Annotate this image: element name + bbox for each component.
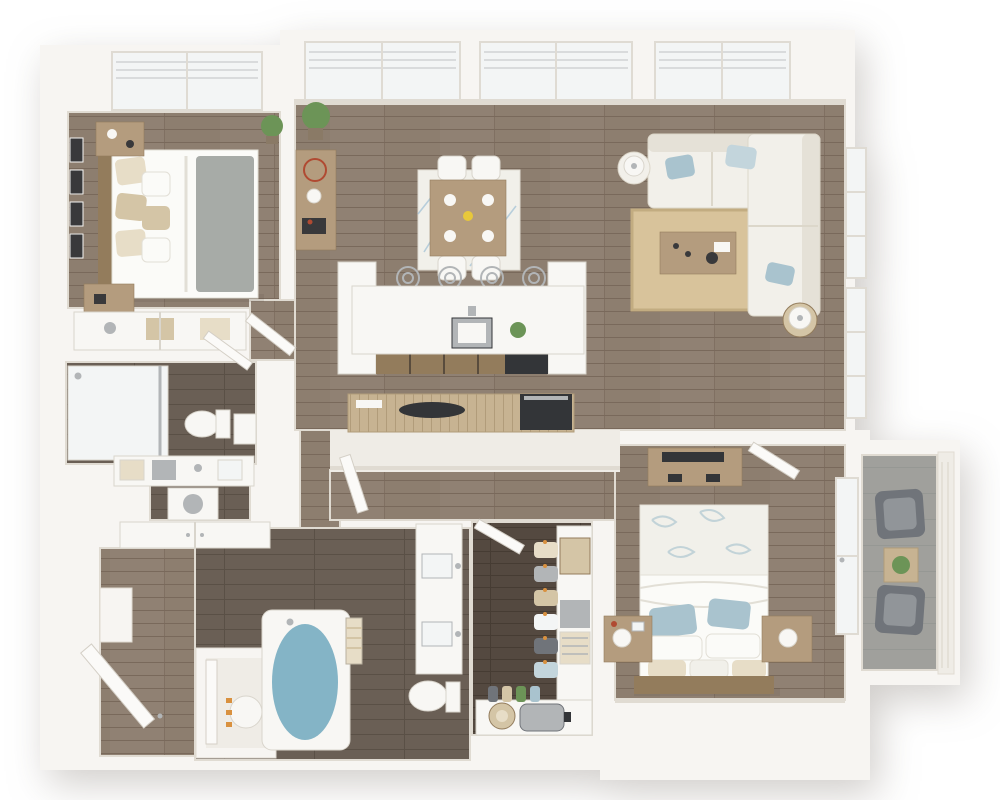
kitchen-hall-wall-edge <box>330 466 620 470</box>
shoes <box>530 686 540 702</box>
place-setting <box>482 194 494 206</box>
bed-1-pillow <box>142 238 170 262</box>
dining-window <box>305 42 460 100</box>
wall-art-frame <box>70 170 83 194</box>
water-heater-valve <box>226 698 232 703</box>
closet-basket <box>104 322 116 334</box>
place-setting <box>482 230 494 242</box>
tv <box>662 452 724 462</box>
shoes <box>488 686 498 702</box>
nightstand-decor <box>107 129 117 139</box>
sun-hat-crown <box>496 710 508 722</box>
laundry-sink-faucet <box>194 464 202 472</box>
nightstand-flowers <box>611 621 617 627</box>
centerpiece-flowers <box>463 211 473 221</box>
coffee-table-vase <box>706 252 718 264</box>
cooktop <box>399 402 465 418</box>
nightstand-lamp <box>613 629 631 647</box>
laundry-basket <box>120 460 144 480</box>
hanger <box>543 612 547 616</box>
shower <box>68 366 168 460</box>
laundry-basket <box>152 460 176 480</box>
balcony-chair-cushion <box>883 497 917 531</box>
coffee-table-decor <box>685 251 691 257</box>
balcony-railing <box>938 452 954 674</box>
plant <box>261 115 283 137</box>
coffee-table-decor <box>673 243 679 249</box>
bed-1-pillow <box>142 206 170 230</box>
bed-1-pillow <box>142 172 170 196</box>
water-heater <box>230 696 262 728</box>
vanity-sink <box>422 554 452 578</box>
storage-box <box>560 632 590 664</box>
tub-faucet <box>287 619 294 626</box>
bed-2-leaf-blanket <box>640 505 768 575</box>
floor-plan-render <box>0 0 1000 800</box>
wall-art-frame <box>70 202 83 226</box>
place-setting <box>444 230 456 242</box>
accent-pillow <box>725 144 758 170</box>
bed-2-pillow-blue <box>707 598 752 630</box>
storage-box <box>560 600 590 628</box>
hanging-shirt <box>534 542 558 558</box>
console-decor-bowl <box>307 189 321 203</box>
hanging-shirt <box>534 638 558 654</box>
hanger <box>543 564 547 568</box>
double-vanity <box>416 524 462 674</box>
nightstand-lamp <box>779 629 797 647</box>
hanging-shirt <box>534 590 558 606</box>
dining-chair <box>472 156 500 180</box>
shoes <box>502 686 512 702</box>
hanging-shirt <box>534 662 558 678</box>
toilet <box>185 411 219 437</box>
vanity-faucet <box>455 631 461 637</box>
wall-art-frame <box>70 234 83 258</box>
tall-plant <box>302 102 330 130</box>
wall-art-frame <box>70 138 83 162</box>
tall-plant-pot <box>308 128 323 140</box>
nightstand-decor <box>126 140 134 148</box>
toilet-tank <box>216 410 230 438</box>
media-console-vent <box>706 474 720 482</box>
bed-2-pillow-accent <box>690 660 728 678</box>
toilet-tank <box>446 682 460 712</box>
nightstand <box>96 122 144 156</box>
coffee-table-book <box>714 242 730 252</box>
dining-chair <box>438 156 466 180</box>
nightstand-book <box>632 622 644 631</box>
hanger <box>543 660 547 664</box>
entry-step-wall <box>100 588 132 642</box>
linen-closet-handle <box>186 533 190 537</box>
island-faucet <box>468 306 476 316</box>
bed-2-pillow-white <box>648 636 702 660</box>
island-plant <box>510 322 526 338</box>
console-table <box>296 150 336 250</box>
bed-2-pillow-blue <box>648 603 697 638</box>
range-handle <box>524 396 568 400</box>
table-lamp-finial <box>631 163 637 169</box>
vanity-faucet <box>455 563 461 569</box>
suitcase <box>520 704 564 731</box>
hall-bottom-floor <box>330 470 620 520</box>
counter-tray <box>356 400 382 408</box>
coffee-table <box>660 232 736 274</box>
suitcase-handle <box>564 712 571 722</box>
place-setting <box>444 194 456 206</box>
bed-1-gray-throw <box>196 156 254 292</box>
water-heater-valve <box>226 722 232 727</box>
apartment-building <box>40 30 960 780</box>
bed-2-pillow-accent <box>732 660 766 678</box>
bed-2-pillow-white <box>706 634 760 658</box>
kitchen <box>338 262 586 432</box>
toilet <box>409 681 447 711</box>
bed-2-headboard <box>634 676 774 694</box>
vanity-sink <box>422 622 452 646</box>
washer-door <box>183 494 203 514</box>
kitchen-hall-wall-face <box>330 430 620 472</box>
nightstand-decor <box>94 294 106 304</box>
hanger <box>543 540 547 544</box>
bathtub-water <box>272 624 338 740</box>
living-room-window-top <box>655 42 790 100</box>
console-decor-tray <box>302 218 326 234</box>
hanging-shirt <box>534 566 558 582</box>
utility-door <box>206 660 217 744</box>
balcony-plant <box>892 556 910 574</box>
bedroom-1-window <box>112 52 262 110</box>
shower-head <box>75 373 82 380</box>
linen-closet-handle <box>200 533 204 537</box>
balcony-door-handle <box>840 558 845 563</box>
media-console-vent <box>668 474 682 482</box>
bedroom-2-bottom-wall-edge <box>615 698 845 703</box>
plant-pot <box>266 136 278 144</box>
island-sink-basin <box>458 323 486 343</box>
front-door-knob <box>158 714 163 719</box>
laundry-basket <box>218 460 242 480</box>
living-room <box>618 134 820 337</box>
rolled-towels <box>346 618 362 664</box>
kitchen-window <box>480 42 632 100</box>
table-lamp-finial <box>797 315 803 321</box>
balcony-chair-cushion <box>883 593 917 627</box>
hanger <box>543 636 547 640</box>
bath-cabinet <box>234 414 256 444</box>
hanger <box>543 588 547 592</box>
shoes <box>516 686 526 702</box>
console-decor-candle <box>308 220 313 225</box>
storage-box <box>560 538 590 574</box>
hanging-shirt <box>534 614 558 630</box>
water-heater-valve <box>226 710 232 715</box>
bed-2-pillow-accent <box>648 660 686 678</box>
